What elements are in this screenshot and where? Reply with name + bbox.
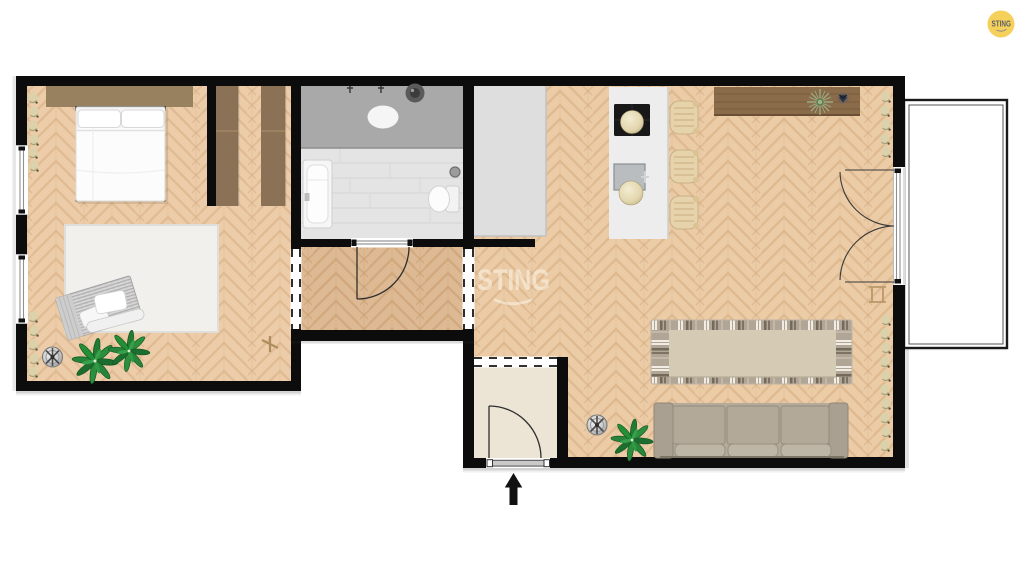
svg-text:STING: STING: [992, 20, 1012, 29]
svg-text:STING: STING: [477, 264, 550, 297]
